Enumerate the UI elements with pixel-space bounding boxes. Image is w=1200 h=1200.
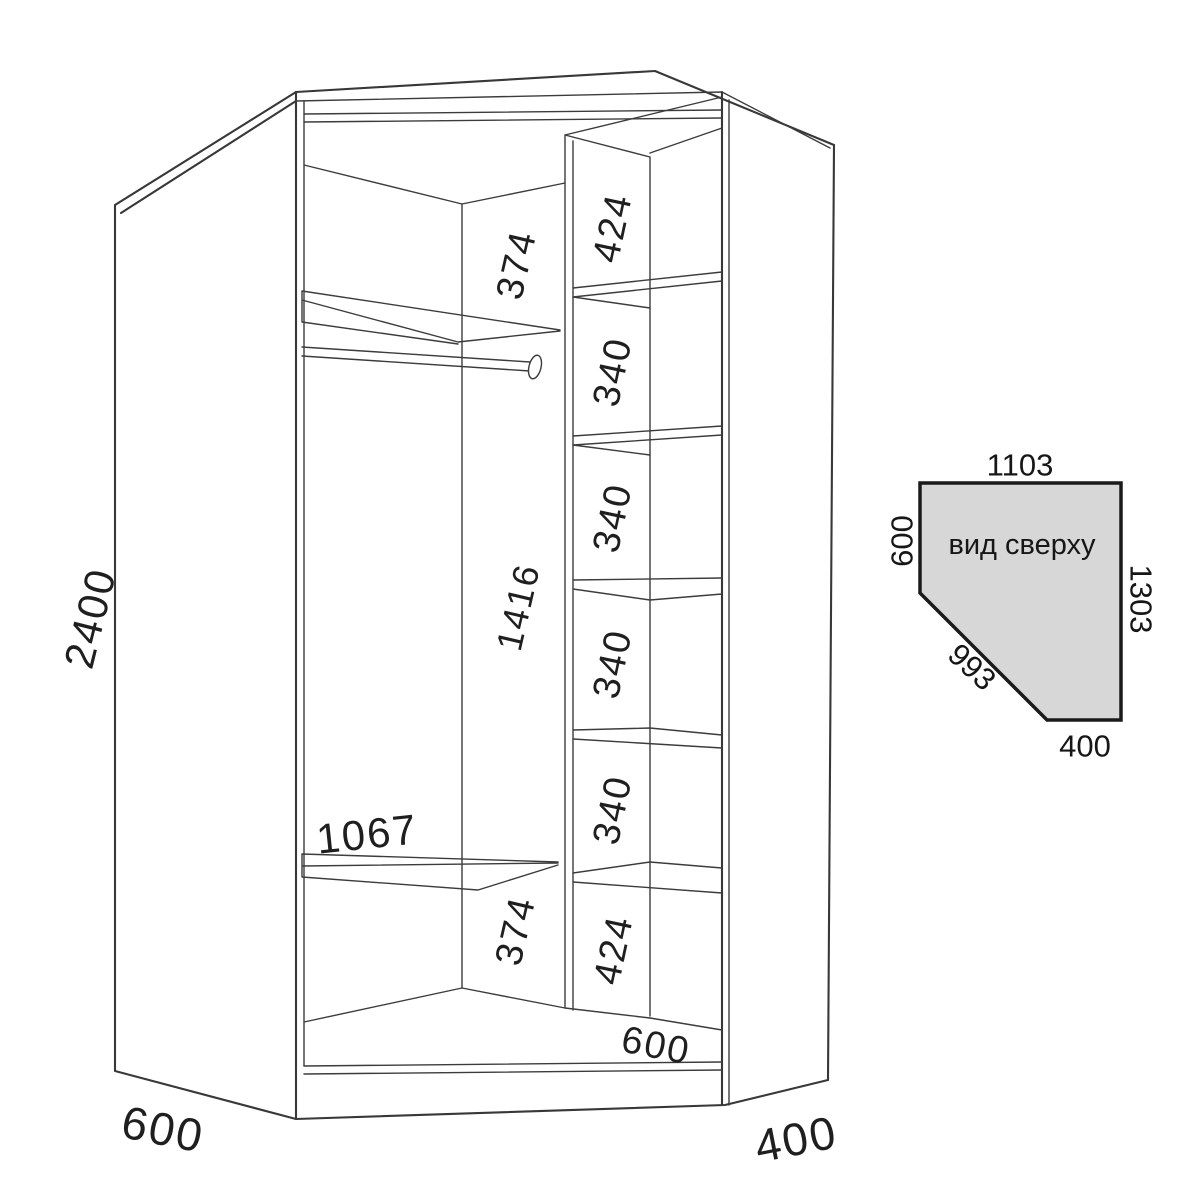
dim-shelf-width: 1067 (314, 805, 420, 862)
shelf (573, 578, 722, 600)
divider-panel (565, 97, 722, 1018)
base-bottom-edge (296, 1080, 828, 1119)
top-view-inset: вид сверху 1103 600 1303 993 400 (885, 448, 1159, 764)
top-view-dim-right: 1303 (1124, 565, 1159, 634)
top-view-outline (920, 483, 1121, 720)
hanging-rod-bar (302, 347, 530, 371)
dim-column-340: 340 (585, 334, 641, 411)
dim-column-424-bottom: 424 (586, 912, 642, 989)
dim-right-width: 400 (750, 1106, 841, 1173)
left-side-panel (115, 92, 296, 1119)
dimension-labels: 2400 600 400 374 1416 374 1067 600 424 3… (55, 190, 842, 1173)
top-view-dim-front-right: 400 (1059, 729, 1111, 764)
dim-top-gap: 374 (489, 226, 546, 303)
dim-column-424-top: 424 (585, 190, 641, 267)
dim-column-340: 340 (585, 480, 641, 557)
shelf (573, 728, 722, 748)
dim-floor-width: 600 (618, 1019, 694, 1073)
shelf (573, 272, 722, 308)
wardrobe-main-view: 2400 600 400 374 1416 374 1067 600 424 3… (55, 71, 842, 1172)
corner-wardrobe-drawing: 2400 600 400 374 1416 374 1067 600 424 3… (0, 0, 1200, 1200)
right-side-panel (722, 92, 834, 1105)
hanging-rod-end-cap (526, 354, 543, 380)
dim-column-340: 340 (585, 772, 641, 849)
shelf (573, 426, 722, 455)
hanging-rod (302, 347, 544, 380)
dim-bottom-gap: 374 (488, 892, 545, 969)
top-view-dim-left: 600 (885, 515, 920, 567)
dim-mid-height: 1416 (488, 559, 548, 654)
dim-left-depth: 600 (117, 1096, 208, 1163)
shelf (573, 862, 722, 893)
top-view-caption: вид сверху (948, 529, 1096, 561)
top-view-dim-back: 1103 (987, 448, 1054, 483)
dim-column-340: 340 (585, 626, 641, 703)
